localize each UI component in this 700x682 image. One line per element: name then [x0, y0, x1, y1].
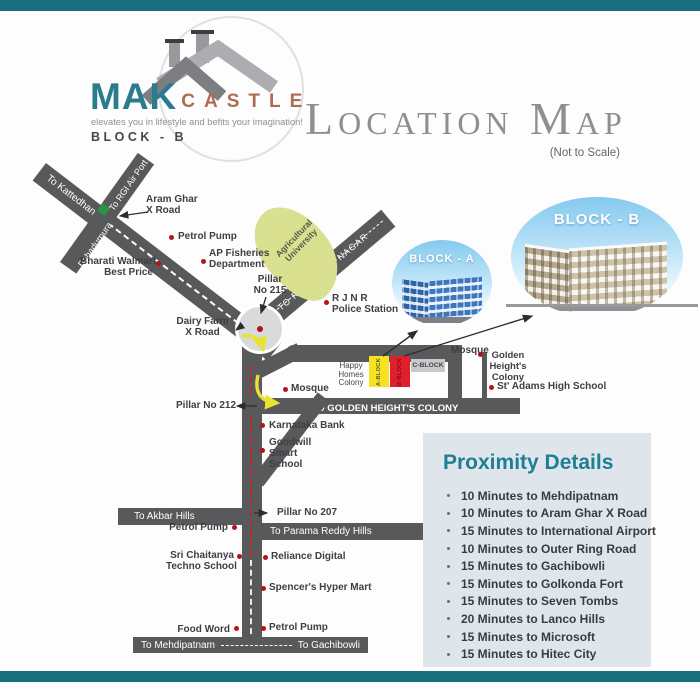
road-loop-right [448, 352, 462, 400]
poi-sri-chaitanya: Sri Chaitanya Techno School [166, 550, 234, 572]
road-label-parama-reddy: To Parama Reddy Hills [270, 526, 372, 537]
logo-castle-text: CASTLE [181, 90, 311, 114]
proximity-item: 10 Minutes to Mehdipatnam [447, 487, 651, 505]
bullet-dot [447, 600, 450, 603]
poi-dot [156, 261, 161, 266]
poi-goodwill-school: Goodwill Smart School [269, 437, 311, 470]
dairy-farm-roundabout [235, 304, 285, 354]
road-label-kattedhan: To Kattedhan [44, 173, 97, 218]
bullet-dot [447, 565, 450, 568]
poi-dot [263, 555, 268, 560]
poi-dot [324, 300, 329, 305]
proximity-item: 15 Minutes to Seven Tombs [447, 593, 651, 611]
poi-dot [234, 626, 239, 631]
logo-block-b: BLOCK - B [91, 130, 187, 144]
road-label-akbar-hills: To Akbar Hills [134, 511, 195, 522]
poi-petrol-pump-top: Petrol Pump [178, 231, 237, 242]
page-subtitle: (Not to Scale) [305, 147, 620, 159]
poi-dairy-farm: Dairy Farm X Road [175, 316, 230, 338]
poi-aram-ghar: Aram Ghar X Road [146, 194, 198, 216]
proximity-item: 10 Minutes to Aram Ghar X Road [447, 505, 651, 523]
poi-petrol-pump-mid: Petrol Pump [166, 522, 228, 533]
poi-petrol-pump-bottom: Petrol Pump [269, 622, 328, 633]
area-happy-homes: Happy Homes Colony [332, 362, 370, 388]
logo: MAK CASTLE [90, 80, 311, 114]
poi-dot [489, 385, 494, 390]
bullet-dot [447, 653, 450, 656]
logo-mak-text: MAK [90, 80, 177, 114]
bottom-teal-bar [0, 671, 700, 682]
inset-block-b-label: BLOCK - B [511, 211, 683, 228]
poi-dot [260, 423, 265, 428]
inset-block-a-label: BLOCK - A [392, 253, 492, 265]
proximity-item: 15 Minutes to International Airport [447, 522, 651, 540]
bullet-dot [447, 494, 450, 497]
top-teal-bar [0, 0, 700, 11]
poi-food-word: Food Word [173, 624, 230, 635]
road-centerline [221, 645, 292, 646]
location-map-poster: MAK CASTLE elevates you in lifestyle and… [0, 0, 700, 682]
block-a-box: A-BLOCK [369, 356, 389, 387]
poi-mosque-right: Mosque [451, 345, 489, 356]
poi-bharati-walmart: Bharati Walmart Best Price [80, 256, 153, 278]
proximity-item: 15 Minutes to Golkonda Fort [447, 575, 651, 593]
poi-pillar-212: Pillar No 212 [176, 400, 236, 411]
poi-dot [261, 626, 266, 631]
proximity-title: Proximity Details [443, 451, 651, 475]
logo-tagline: elevates you in lifestyle and befits you… [91, 117, 303, 127]
proximity-list: 10 Minutes to Mehdipatnam 10 Minutes to … [423, 487, 651, 663]
poi-st-adams: St' Adams High School [497, 381, 606, 392]
poi-mosque-left: Mosque [291, 383, 329, 394]
proximity-item: 20 Minutes to Lanco Hills [447, 610, 651, 628]
bullet-dot [447, 617, 450, 620]
roundabout-center-dot [257, 326, 263, 332]
proximity-item: 15 Minutes to Hitec City [447, 645, 651, 663]
bullet-dot [447, 547, 450, 550]
road-parama-reddy: To Parama Reddy Hills [262, 523, 438, 540]
poi-karnataka-bank: Karnataka Bank [269, 420, 345, 431]
agricultural-university-label: Agricultural University [274, 218, 321, 266]
road-golden-heights: TO GOLDEN HEIGHT'S COLONY [250, 398, 520, 414]
poi-dot [283, 387, 288, 392]
poi-reliance-digital: Reliance Digital [271, 551, 345, 562]
proximity-item: 10 Minutes to Outer Ring Road [447, 540, 651, 558]
area-golden-colony: Golden Height's Colony [487, 350, 529, 383]
poi-ap-fisheries: AP Fisheries Department [209, 248, 269, 270]
poi-dot [261, 586, 266, 591]
poi-rjnr-police: R J N R Police Station [332, 293, 398, 315]
poi-dot [260, 448, 265, 453]
poi-pillar-207: Pillar No 207 [277, 507, 337, 518]
page-title: Location Map [305, 92, 623, 145]
bullet-dot [447, 635, 450, 638]
poi-dot [232, 525, 237, 530]
poi-dot [169, 235, 174, 240]
poi-dot [237, 554, 242, 559]
proximity-item: 15 Minutes to Gachibowli [447, 557, 651, 575]
road-vertical-main [242, 338, 262, 640]
poi-dot [201, 259, 206, 264]
inset-block-b: BLOCK - B [511, 197, 683, 317]
proximity-item: 15 Minutes to Microsoft [447, 628, 651, 646]
proximity-details-panel: Proximity Details 10 Minutes to Mehdipat… [423, 433, 651, 667]
road-label-mehdipatnam: To Mehdipatnam [141, 640, 215, 651]
road-label-golden-heights: TO GOLDEN HEIGHT'S COLONY [312, 403, 459, 414]
bullet-dot [447, 512, 450, 515]
block-b-building-image [525, 244, 667, 308]
block-b-ground-line [506, 304, 698, 307]
aram-ghar-arrow [120, 212, 148, 216]
inset-block-a: BLOCK - A [392, 240, 492, 326]
bullet-dot [447, 529, 450, 532]
bullet-dot [447, 582, 450, 585]
route-red-dashes [250, 366, 252, 556]
road-label-gachibowli: To Gachibowli [298, 640, 360, 651]
block-a-building-image [402, 275, 482, 319]
poi-pillar-215: Pillar No 215 [248, 274, 292, 296]
block-c-box: C-BLOCK [411, 359, 445, 372]
block-b-box: B-BLOCK [390, 356, 410, 387]
road-mehdipatnam-gachibowli: To Mehdipatnam To Gachibowli [133, 637, 368, 653]
road-centerline [250, 560, 252, 634]
poi-spencers: Spencer's Hyper Mart [269, 582, 371, 593]
poi-dot [478, 352, 483, 357]
